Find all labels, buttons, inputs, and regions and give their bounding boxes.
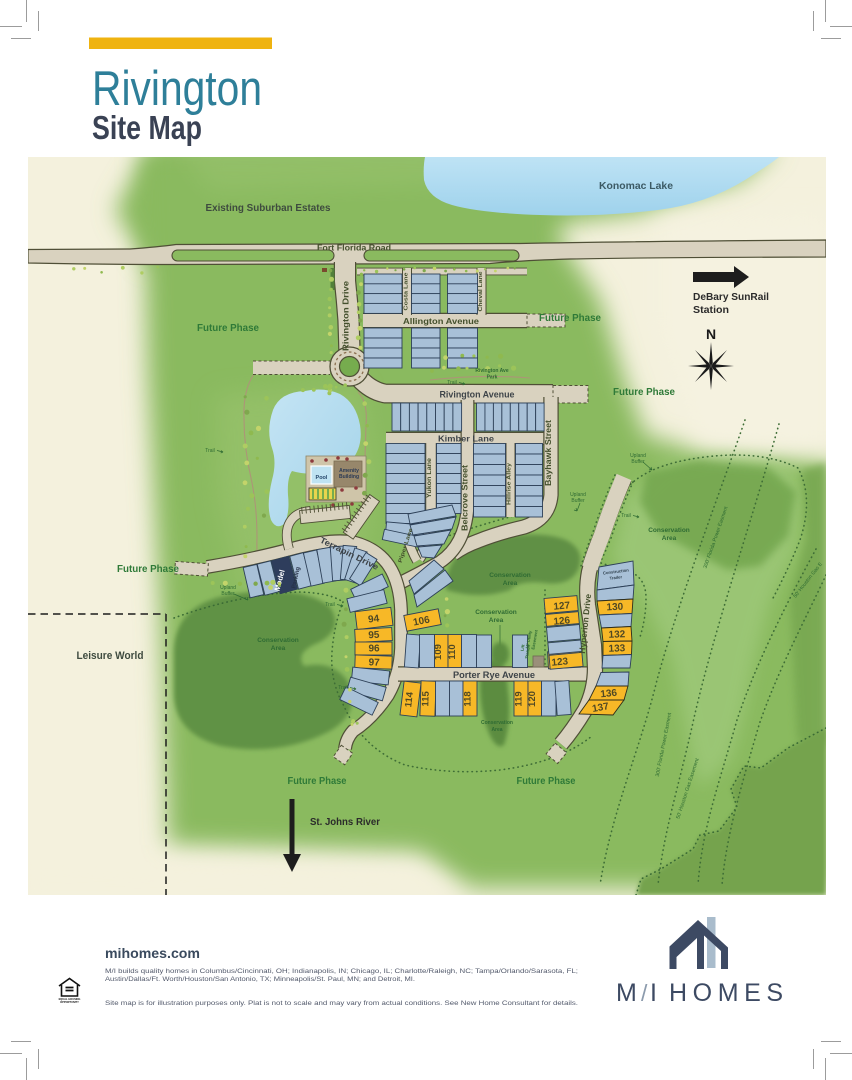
svg-text:Site Map: Site Map — [92, 109, 202, 146]
svg-text:Yukon Lane: Yukon Lane — [427, 457, 433, 498]
svg-text:Conservation: Conservation — [648, 527, 690, 534]
svg-text:94: 94 — [368, 613, 381, 625]
svg-text:120: 120 — [527, 691, 538, 707]
svg-text:Porter Rye Avenue: Porter Rye Avenue — [453, 670, 535, 680]
svg-text:Site map is for illustration p: Site map is for illustration purposes on… — [105, 1000, 578, 1007]
svg-text:mihomes.com: mihomes.com — [105, 945, 200, 961]
svg-text:Allington Avenue: Allington Avenue — [403, 317, 479, 326]
svg-text:Trail: Trail — [325, 602, 335, 608]
svg-text:Area: Area — [271, 645, 286, 652]
svg-text:St. Johns River: St. Johns River — [310, 817, 380, 828]
svg-text:Area: Area — [662, 535, 677, 542]
svg-text:/: / — [641, 980, 648, 1006]
svg-text:Cheval Lane: Cheval Lane — [478, 272, 484, 312]
svg-text:133: 133 — [608, 643, 625, 655]
svg-text:119: 119 — [514, 691, 525, 706]
svg-text:M: M — [616, 979, 637, 1007]
svg-text:Future Phase: Future Phase — [517, 775, 576, 787]
svg-text:Costa Lane: Costa Lane — [404, 273, 410, 311]
svg-text:127: 127 — [553, 600, 571, 612]
svg-text:Leisure World: Leisure World — [77, 650, 144, 662]
svg-text:130: 130 — [606, 602, 624, 614]
svg-text:Area: Area — [489, 617, 504, 624]
svg-text:Trail: Trail — [338, 685, 348, 691]
svg-text:Pool: Pool — [316, 475, 328, 481]
svg-text:96: 96 — [368, 644, 380, 655]
svg-text:Rivington Drive: Rivington Drive — [342, 280, 351, 351]
svg-text:Buffer: Buffer — [571, 498, 585, 504]
svg-text:Austin/Dallas/Ft. Worth/Housto: Austin/Dallas/Ft. Worth/Houston/San Anto… — [105, 976, 415, 983]
svg-text:Bayhawk Street: Bayhawk Street — [543, 420, 553, 486]
svg-text:OPPORTUNITY: OPPORTUNITY — [60, 1000, 79, 1004]
svg-text:97: 97 — [368, 657, 380, 668]
svg-text:95: 95 — [368, 630, 380, 642]
svg-text:Future Phase: Future Phase — [613, 386, 675, 398]
svg-text:126: 126 — [553, 615, 571, 627]
svg-text:Buffer: Buffer — [631, 459, 645, 465]
svg-text:Conservation: Conservation — [481, 720, 513, 726]
svg-text:DeBary SunRail: DeBary SunRail — [693, 292, 769, 303]
svg-text:Trail: Trail — [621, 513, 631, 519]
svg-text:Existing Suburban Estates: Existing Suburban Estates — [206, 203, 331, 214]
svg-text:Conservation: Conservation — [489, 572, 531, 579]
svg-text:Area: Area — [503, 580, 518, 587]
svg-text:132: 132 — [608, 629, 625, 641]
svg-text:Fort Florida Road: Fort Florida Road — [317, 244, 391, 253]
svg-text:Rivington: Rivington — [92, 62, 262, 116]
svg-text:114: 114 — [403, 691, 416, 708]
svg-text:110: 110 — [447, 644, 458, 659]
svg-text:Konomac Lake: Konomac Lake — [599, 181, 673, 192]
svg-text:Trail: Trail — [205, 448, 215, 454]
svg-text:HOMES: HOMES — [669, 979, 789, 1007]
svg-text:Kimber Lane: Kimber Lane — [438, 434, 494, 444]
svg-text:123: 123 — [551, 656, 569, 668]
svg-text:115: 115 — [420, 690, 432, 706]
svg-text:Buffer: Buffer — [221, 591, 235, 597]
svg-text:Park: Park — [487, 375, 498, 381]
svg-text:Future Phase: Future Phase — [288, 775, 347, 787]
svg-text:Future Phase: Future Phase — [539, 312, 601, 324]
svg-text:Rivington Ave: Rivington Ave — [475, 368, 508, 374]
svg-text:M/I builds quality homes in Co: M/I builds quality homes in Columbus/Cin… — [105, 968, 578, 975]
svg-text:N: N — [706, 326, 716, 342]
svg-text:Conservation: Conservation — [475, 609, 517, 616]
svg-text:Belcrove Street: Belcrove Street — [460, 465, 470, 531]
svg-text:Building: Building — [339, 474, 359, 480]
svg-text:Trail: Trail — [447, 380, 457, 386]
svg-text:Future Phase: Future Phase — [197, 322, 259, 334]
svg-text:I: I — [650, 979, 657, 1007]
svg-text:Hillrise Alley: Hillrise Alley — [507, 462, 513, 505]
svg-text:109: 109 — [433, 644, 444, 660]
svg-text:Area: Area — [491, 727, 502, 733]
svg-text:Conservation: Conservation — [257, 637, 299, 644]
svg-text:Rivington Avenue: Rivington Avenue — [440, 390, 515, 400]
svg-text:Future Phase: Future Phase — [117, 563, 179, 575]
svg-text:136: 136 — [600, 688, 618, 701]
svg-text:118: 118 — [463, 691, 474, 706]
svg-text:Station: Station — [693, 305, 729, 316]
